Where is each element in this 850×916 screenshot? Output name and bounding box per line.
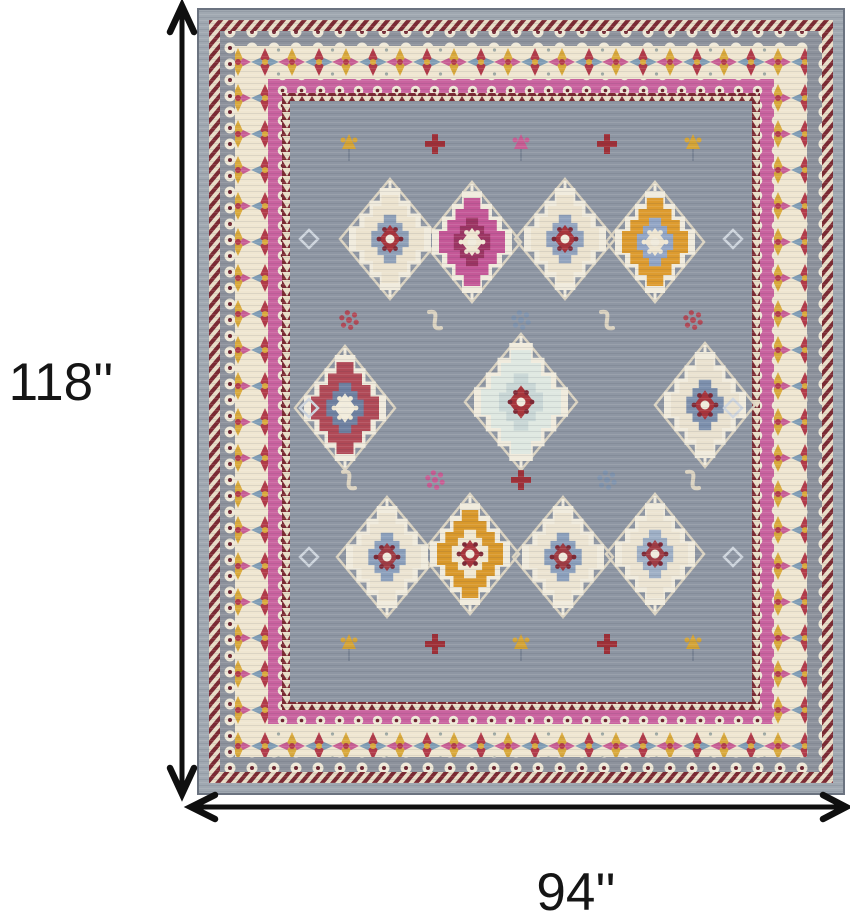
height-arrowhead-bottom — [170, 768, 194, 794]
height-arrowhead-top — [170, 6, 194, 32]
width-dimension-label: 94'' — [497, 866, 655, 916]
width-arrow — [191, 795, 846, 819]
width-arrowhead-left — [191, 795, 215, 819]
width-arrowhead-right — [823, 795, 846, 819]
height-arrow — [170, 6, 194, 794]
rug-dimension-figure: 118'' 94'' — [0, 0, 850, 916]
height-dimension-label: 118'' — [0, 356, 122, 409]
rug-weave-texture — [197, 8, 845, 795]
rug-image — [197, 8, 845, 795]
